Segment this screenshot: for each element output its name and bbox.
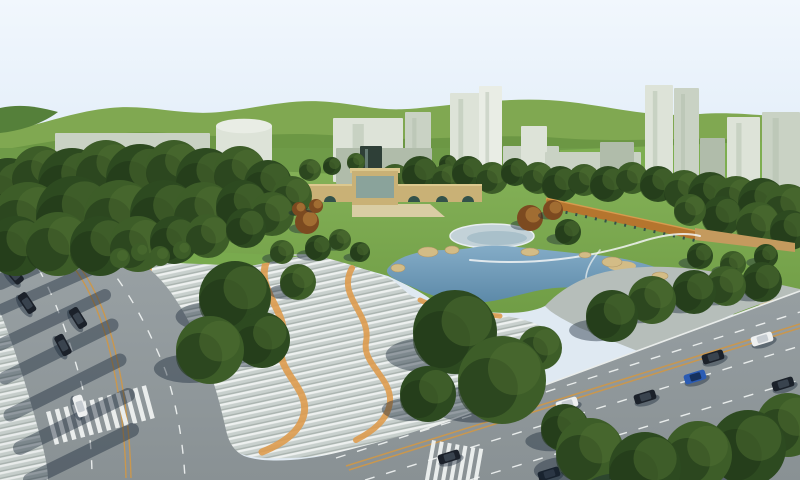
tree-canopy-highlight xyxy=(604,294,635,325)
building-block xyxy=(762,112,800,190)
building-block xyxy=(674,88,699,180)
building-window-stripe xyxy=(681,94,685,174)
tree-canopy-highlight xyxy=(199,321,240,362)
tree-canopy-highlight xyxy=(336,231,349,244)
building-window-stripe xyxy=(736,123,741,181)
tree-canopy-highlight xyxy=(240,211,264,235)
hedge-highlight xyxy=(117,250,128,261)
building-window-stripe xyxy=(773,118,779,184)
rock xyxy=(391,264,405,272)
tree-canopy-highlight xyxy=(762,246,776,260)
tree-canopy-highlight xyxy=(278,242,292,256)
tree-canopy-highlight xyxy=(329,158,340,169)
building-block xyxy=(645,85,673,180)
hedge-highlight xyxy=(157,248,168,259)
bridge-steps xyxy=(352,204,445,217)
tree-canopy-highlight xyxy=(442,296,492,346)
tree-canopy-highlight xyxy=(687,273,713,299)
tree-canopy-highlight xyxy=(306,161,319,174)
building-window-stripe xyxy=(653,91,657,174)
rock xyxy=(418,247,438,257)
autumn-tree-highlight xyxy=(314,200,322,208)
pavilion-glass xyxy=(356,176,394,198)
autumn-tree-highlight xyxy=(297,203,305,211)
tree-canopy-highlight xyxy=(720,269,744,293)
tree-canopy-highlight xyxy=(696,245,712,261)
tree-canopy-highlight xyxy=(716,199,740,223)
tree-canopy-highlight xyxy=(685,196,704,215)
tree-canopy-highlight xyxy=(286,179,310,203)
tree-canopy-highlight xyxy=(633,437,676,480)
tree-canopy-highlight xyxy=(357,243,369,255)
tree-canopy-highlight xyxy=(265,195,291,221)
tree-canopy-highlight xyxy=(687,426,728,467)
rock xyxy=(445,246,459,254)
tree-canopy-highlight xyxy=(736,415,782,461)
tree-canopy-highlight xyxy=(533,329,559,355)
tree-canopy-highlight xyxy=(253,316,287,350)
rock xyxy=(521,248,539,256)
autumn-tree-highlight xyxy=(303,212,317,226)
park-rendering-canvas xyxy=(0,0,800,480)
building-window-stripe xyxy=(485,92,489,174)
hedge-highlight xyxy=(179,243,189,253)
tree-canopy-highlight xyxy=(223,266,266,309)
rock xyxy=(602,257,622,267)
tree-canopy-highlight xyxy=(292,267,314,289)
hedge-highlight xyxy=(137,245,147,255)
tree-canopy-highlight xyxy=(644,279,673,308)
tree-canopy-highlight xyxy=(353,154,364,165)
tree-canopy-highlight xyxy=(756,265,780,289)
tree-canopy-highlight xyxy=(729,253,745,269)
rock xyxy=(579,252,591,258)
tree-canopy-highlight xyxy=(564,221,580,237)
tree-canopy-highlight xyxy=(419,370,453,404)
tree-canopy-highlight xyxy=(201,217,227,243)
tree-canopy-highlight xyxy=(314,237,330,253)
park-rendering xyxy=(0,0,800,480)
building-cylinder-top xyxy=(216,119,272,134)
tree-canopy-highlight xyxy=(488,342,541,395)
autumn-tree-highlight xyxy=(550,202,562,214)
